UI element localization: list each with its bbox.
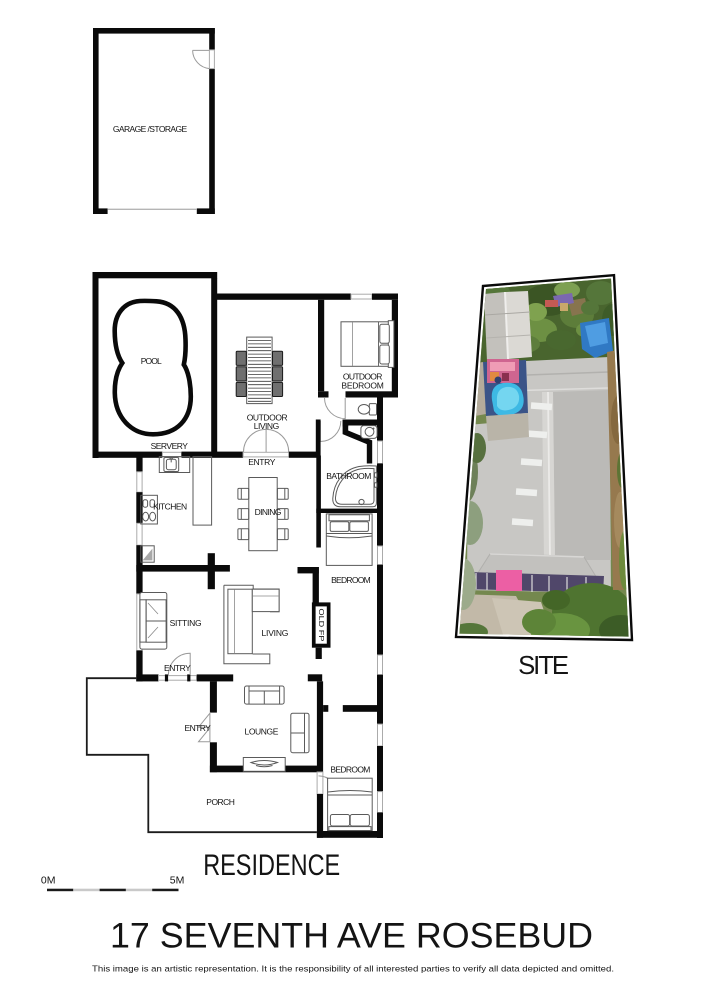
svg-text:KITCHEN: KITCHEN	[153, 502, 187, 512]
svg-text:0M: 0M	[41, 875, 56, 887]
svg-text:BEDROOM: BEDROOM	[331, 575, 371, 585]
svg-text:BATHROOM: BATHROOM	[326, 471, 371, 481]
svg-text:OLD FP: OLD FP	[317, 609, 324, 642]
svg-text:SERVERY: SERVERY	[151, 441, 189, 451]
svg-text:ENTRY: ENTRY	[248, 457, 276, 467]
svg-text:This image is an artistic repr: This image is an artistic representation…	[92, 964, 614, 974]
svg-text:ENTRY: ENTRY	[185, 723, 212, 733]
svg-text:GARAGE /STORAGE: GARAGE /STORAGE	[113, 124, 188, 134]
svg-text:LIVING: LIVING	[254, 421, 280, 431]
svg-text:LIVING: LIVING	[262, 628, 289, 638]
svg-text:BEDROOM: BEDROOM	[330, 764, 370, 774]
svg-text:LOUNGE: LOUNGE	[245, 727, 279, 737]
svg-text:SITE: SITE	[518, 652, 569, 680]
svg-text:POOL: POOL	[141, 356, 162, 366]
svg-text:SITTING: SITTING	[170, 618, 202, 628]
svg-text:ENTRY: ENTRY	[164, 663, 191, 673]
svg-text:PORCH: PORCH	[206, 797, 235, 807]
svg-text:17 SEVENTH AVE ROSEBUD: 17 SEVENTH AVE ROSEBUD	[110, 917, 593, 956]
svg-text:DINING: DINING	[255, 507, 282, 517]
svg-text:5M: 5M	[170, 875, 185, 887]
svg-text:RESIDENCE: RESIDENCE	[203, 849, 340, 882]
svg-text:BEDROOM: BEDROOM	[341, 380, 384, 390]
